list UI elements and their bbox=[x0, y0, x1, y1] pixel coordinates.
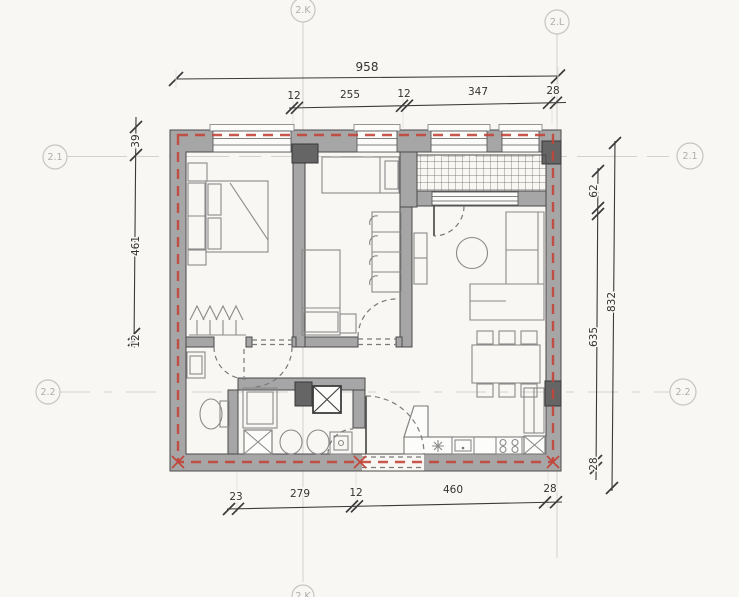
axis-label: 2.L bbox=[550, 17, 565, 28]
axis-label: 2.1 bbox=[682, 151, 697, 162]
loggia-hatched-floor bbox=[417, 155, 546, 191]
chair bbox=[521, 384, 537, 397]
chair bbox=[499, 331, 515, 344]
dim-top-total: 958 bbox=[169, 60, 565, 88]
nightstand bbox=[188, 250, 206, 265]
hall-wall-segment bbox=[246, 337, 252, 347]
dim-top-segments: 12 255 12 347 28 bbox=[286, 85, 566, 114]
loggia-side-wall bbox=[400, 152, 417, 207]
axis-marker-2k-bottom: 2.K bbox=[292, 585, 314, 597]
axis-label: 2.1 bbox=[47, 152, 62, 163]
nightstand bbox=[188, 163, 207, 181]
bedroom2-door-swing bbox=[358, 299, 396, 337]
bathroom-side-wall bbox=[353, 390, 365, 428]
fridge bbox=[524, 436, 545, 454]
dim-label: 12 bbox=[287, 90, 300, 102]
axis-label: 2.K bbox=[295, 5, 311, 16]
dim-label: 28 bbox=[543, 483, 556, 495]
dim-right-segments: 62 635 28 bbox=[588, 165, 604, 480]
axis-label: 2.K bbox=[295, 591, 311, 597]
hall-wall-segment bbox=[305, 337, 358, 347]
chair bbox=[477, 331, 493, 344]
dim-bottom-segments: 23 279 12 460 28 bbox=[223, 483, 562, 515]
chair bbox=[477, 384, 493, 397]
window-bedroom1 bbox=[210, 125, 294, 153]
chair bbox=[521, 331, 537, 344]
wc-door-swing bbox=[214, 347, 246, 379]
nightstand bbox=[340, 314, 356, 333]
window-bedroom2 bbox=[354, 125, 400, 153]
hall-wall-segment bbox=[292, 337, 296, 347]
dim-label: 347 bbox=[468, 86, 488, 98]
shower bbox=[243, 388, 277, 428]
window-loggia-right bbox=[499, 125, 542, 153]
dim-label: 12 bbox=[349, 487, 362, 499]
dining-set bbox=[472, 331, 540, 397]
loggia-door-window bbox=[432, 192, 518, 205]
wardrobe-with-hangers bbox=[370, 212, 401, 292]
column bbox=[292, 144, 318, 163]
wc-fixtures bbox=[187, 352, 229, 429]
ventilation-shaft bbox=[313, 386, 341, 413]
chair bbox=[499, 384, 515, 397]
pillow bbox=[208, 184, 221, 215]
dim-left-segments: 39 461 12 bbox=[128, 117, 142, 348]
single-bed bbox=[302, 250, 340, 335]
axis-grid: 2.K 2.L 2.1 2.1 2.2 2.2 2.K bbox=[36, 0, 703, 597]
pillow bbox=[208, 218, 221, 249]
pillow bbox=[304, 312, 338, 332]
dim-label: 279 bbox=[290, 488, 310, 500]
living-room-furniture bbox=[414, 212, 544, 397]
dim-label: 832 bbox=[606, 292, 618, 312]
axis-marker-21-right: 2.1 bbox=[677, 143, 703, 169]
bidet bbox=[330, 432, 352, 454]
washing-machine bbox=[244, 430, 272, 454]
column bbox=[295, 382, 312, 406]
dim-label: 958 bbox=[356, 60, 379, 74]
dim-label: 460 bbox=[443, 484, 463, 496]
axis-label: 2.2 bbox=[675, 387, 690, 398]
coat-rack-hangers bbox=[189, 306, 246, 335]
balcony-door-swing bbox=[434, 206, 464, 236]
kitchen-furniture bbox=[404, 388, 546, 454]
dim-label: 23 bbox=[229, 491, 242, 503]
dim-label: 39 bbox=[130, 134, 142, 147]
bedroom1-door-leaf bbox=[252, 340, 292, 345]
dim-label: 635 bbox=[588, 327, 600, 347]
bedroom2-furniture bbox=[302, 157, 401, 335]
axis-marker-21-left: 2.1 bbox=[43, 145, 67, 169]
dim-label: 28 bbox=[588, 457, 600, 470]
washbasin bbox=[187, 352, 205, 378]
dim-label: 62 bbox=[588, 184, 600, 197]
dim-label: 461 bbox=[130, 236, 142, 256]
axis-marker-2k-top: 2.K bbox=[291, 0, 315, 22]
dim-label: 255 bbox=[340, 89, 360, 101]
bedroom1-furniture bbox=[188, 163, 268, 335]
loggia bbox=[417, 155, 546, 236]
bathroom-sink bbox=[307, 430, 329, 454]
toilet bbox=[200, 399, 229, 429]
dim-right-total: 832 bbox=[606, 137, 621, 494]
pillow bbox=[385, 161, 398, 189]
dim-label: 12 bbox=[397, 88, 410, 100]
single-bed bbox=[322, 157, 399, 193]
dim-label: 12 bbox=[130, 334, 142, 347]
corner-cabinet bbox=[404, 406, 428, 437]
dim-label: 28 bbox=[546, 85, 559, 97]
window-loggia-left bbox=[428, 125, 490, 153]
bathroom-sink bbox=[280, 430, 302, 454]
dining-table bbox=[472, 345, 540, 383]
double-bed bbox=[206, 181, 268, 252]
axis-marker-22-left: 2.2 bbox=[36, 380, 60, 404]
axis-label: 2.2 bbox=[40, 387, 55, 398]
bedroom2-door-leaf bbox=[358, 339, 396, 345]
coffee-table bbox=[457, 238, 488, 269]
hall-wall-segment bbox=[186, 337, 214, 347]
axis-marker-2l-top: 2.L bbox=[545, 10, 569, 34]
floor-plan-drawing: 2.K 2.L 2.1 2.1 2.2 2.2 2.K bbox=[0, 0, 739, 597]
hall-wall-segment bbox=[396, 337, 402, 347]
axis-marker-22-right: 2.2 bbox=[670, 379, 696, 405]
floor-plan-page: 2.K 2.L 2.1 2.1 2.2 2.2 2.K bbox=[0, 0, 739, 597]
